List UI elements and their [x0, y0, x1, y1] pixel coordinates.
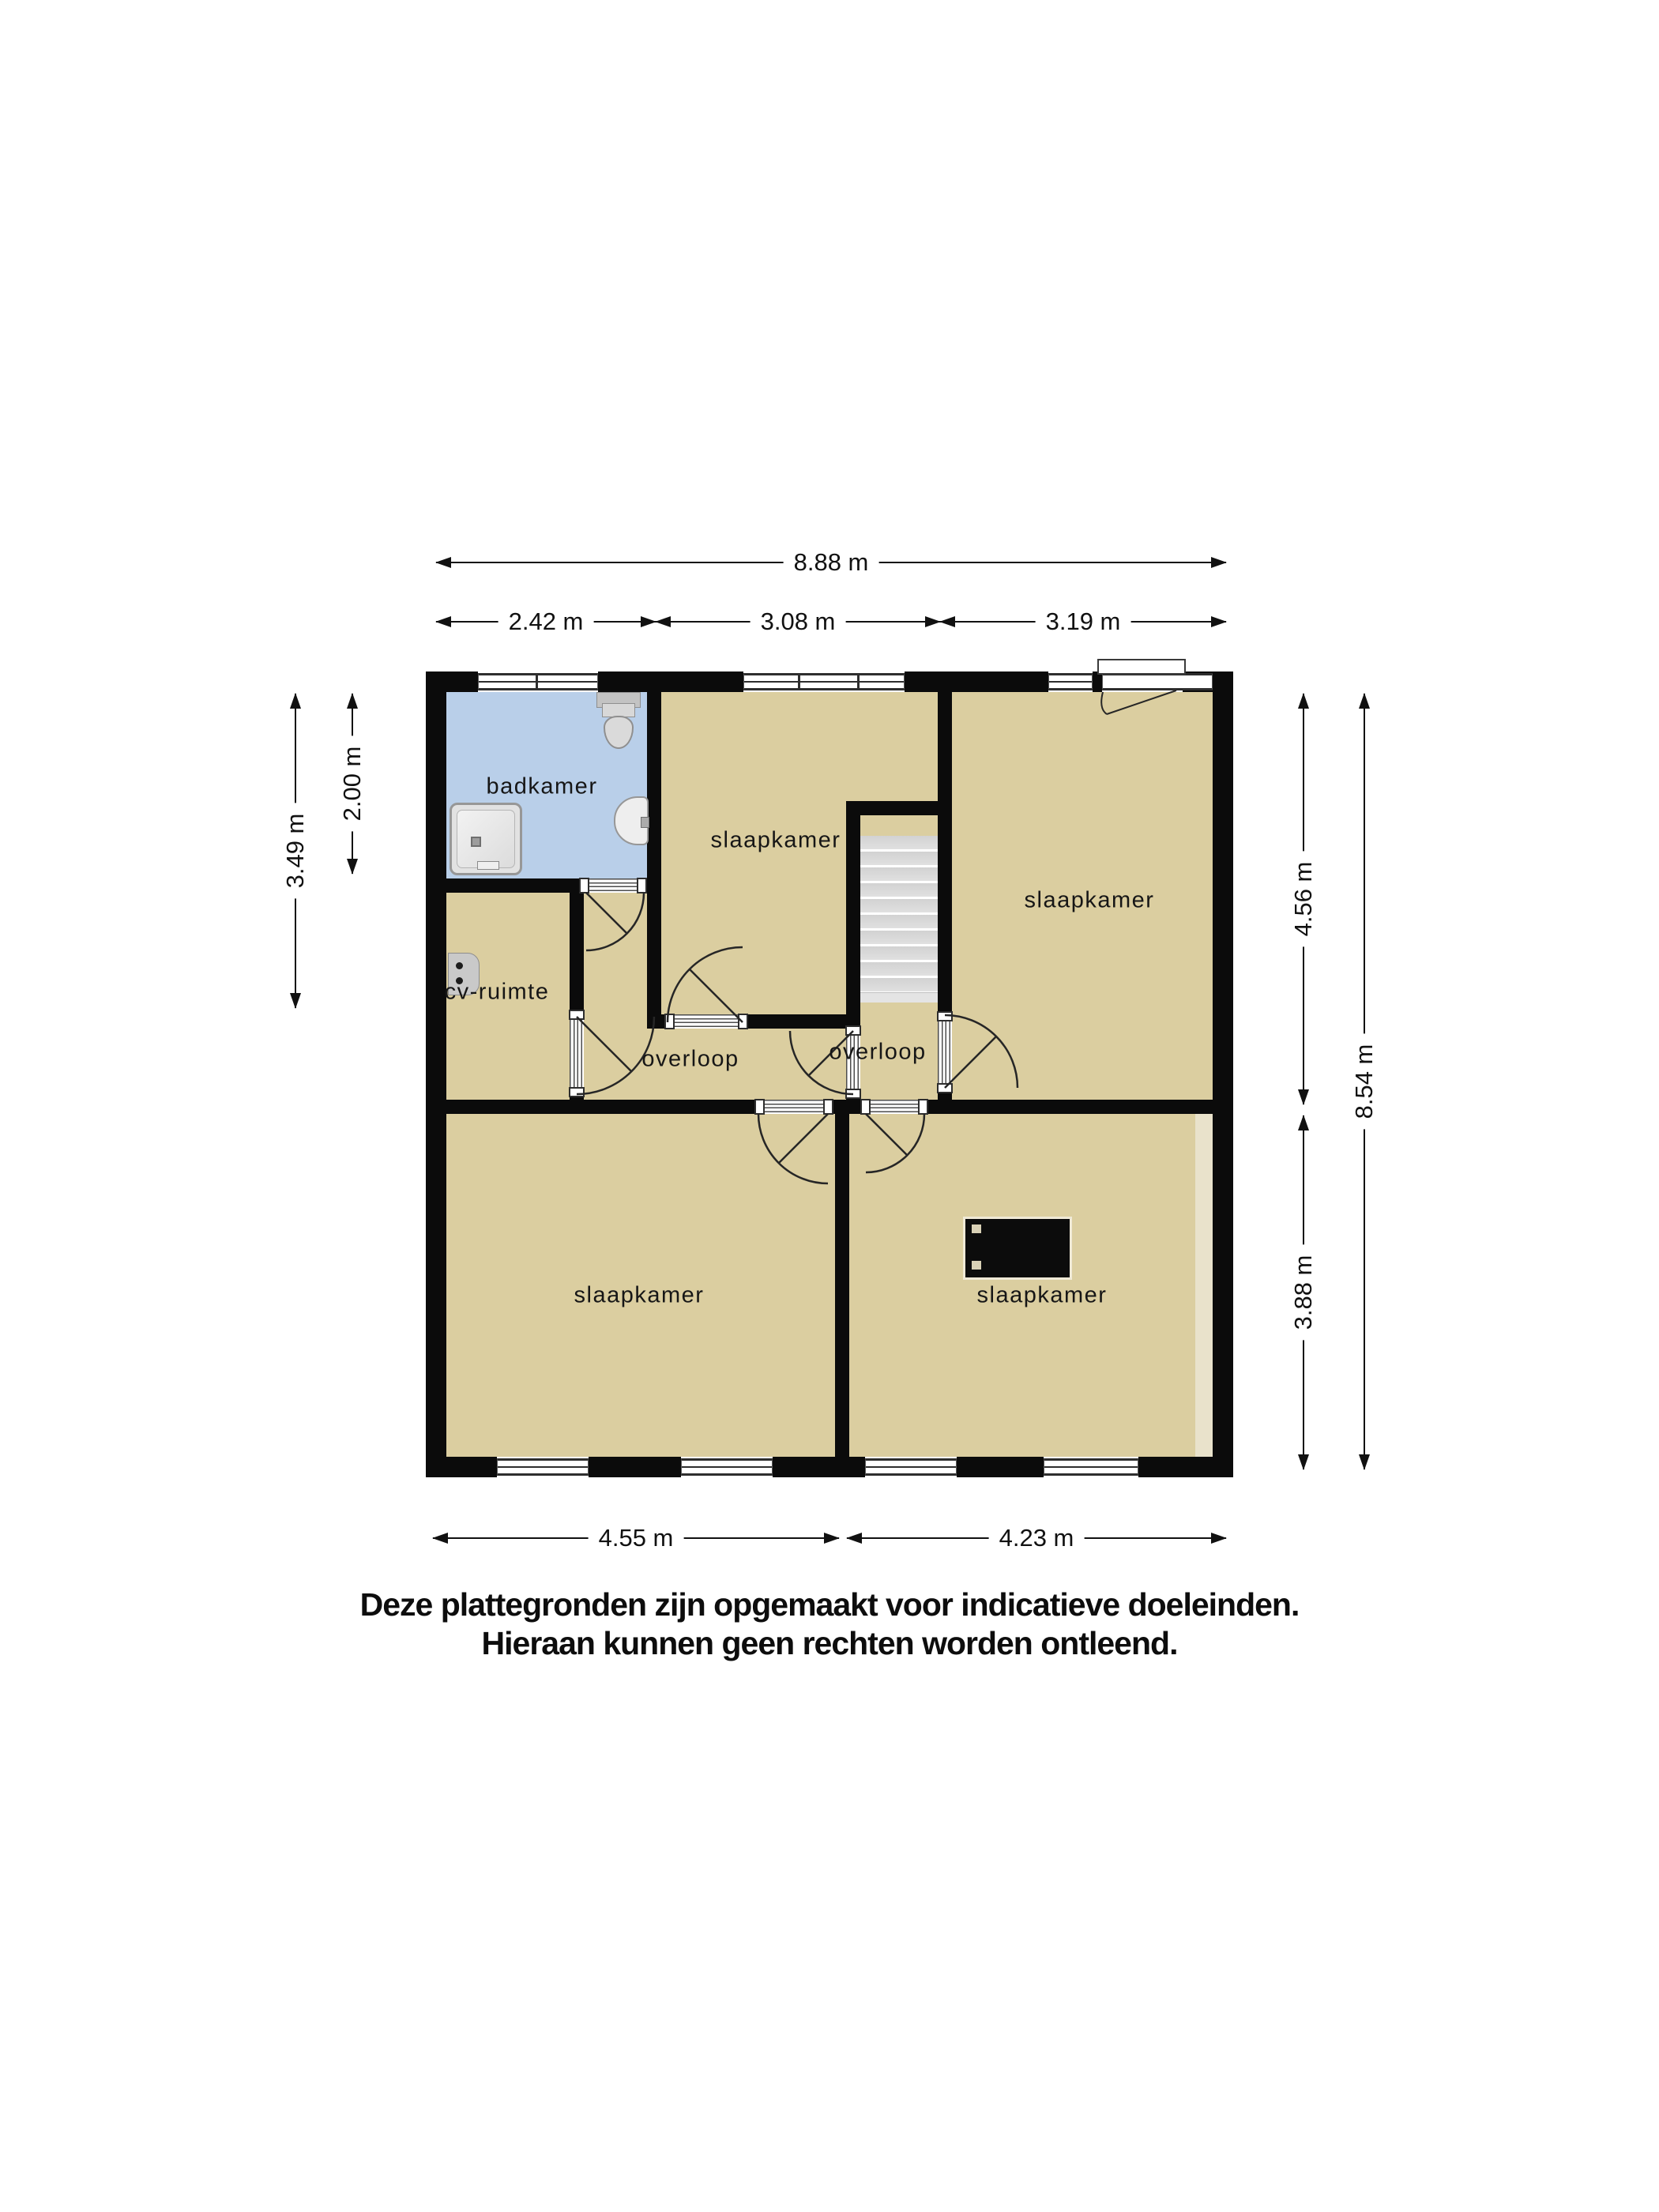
window-mullion	[536, 675, 538, 688]
wall-left	[426, 671, 446, 1477]
room-label-slaapkamer-top-middle: slaapkamer	[711, 828, 841, 854]
wall-top-3	[905, 671, 1048, 692]
disclaimer-line2: Hieraan kunnen geen rechten worden ontle…	[0, 1624, 1659, 1663]
chimney-flue	[972, 1261, 981, 1270]
wall-bottom-4	[957, 1457, 1044, 1477]
shower-tray	[457, 810, 515, 868]
room-label-cv-ruimte: cv-ruimte	[445, 980, 550, 1006]
door-bedroom-top-right	[938, 1014, 952, 1090]
room-label-slaapkamer-top-right: slaapkamer	[1025, 888, 1155, 914]
wall-bottom-3	[773, 1457, 865, 1477]
wall-hall-south-1	[426, 1100, 758, 1114]
chimney-flue	[972, 1224, 981, 1233]
dimension-label: 3.19 m	[1036, 608, 1131, 636]
dimension-label: 2.42 m	[498, 608, 594, 636]
shower-icon	[450, 803, 522, 875]
chimney-block	[965, 1219, 1070, 1277]
dimension-label: 8.54 m	[1350, 1034, 1379, 1130]
window-bottom-4	[1044, 1458, 1138, 1476]
wall-bottom-5	[1138, 1457, 1233, 1477]
wall-bedroom-mid-bottom-2	[745, 1014, 860, 1029]
wall-cv-right	[570, 893, 584, 1013]
shower-tap	[477, 861, 499, 870]
wall-hall-south-3	[925, 1100, 1233, 1114]
wall-stair-top	[846, 801, 952, 815]
dimension-label: 3.08 m	[750, 608, 846, 636]
room-label-overloop-east: overloop	[829, 1040, 926, 1066]
wall-bedroom-right-divider	[938, 692, 952, 1014]
dimension-label: 4.55 m	[589, 1524, 684, 1552]
window-bathroom	[478, 673, 598, 690]
door-bedroom-bottom-right	[863, 1100, 925, 1114]
door-cv-room	[570, 1013, 584, 1094]
wall-top-2	[598, 671, 743, 692]
wall-bathroom-bottom	[446, 878, 582, 893]
wall-accent-strip	[1195, 1114, 1213, 1457]
staircase-icon	[860, 836, 938, 992]
door-bedroom-bottom-left	[758, 1100, 830, 1114]
room-label-slaapkamer-bottom-right: slaapkamer	[977, 1283, 1108, 1309]
door-bedroom-top-middle	[668, 1014, 745, 1029]
wall-bathroom-right	[647, 692, 661, 1014]
room-label-slaapkamer-bottom-left: slaapkamer	[574, 1283, 705, 1309]
window-bottom-1	[497, 1458, 589, 1476]
open-casement-pane	[1097, 659, 1186, 675]
wall-right	[1213, 671, 1233, 1477]
wall-bottom-1	[426, 1457, 497, 1477]
staircase-landing	[860, 992, 938, 1003]
disclaimer: Deze plattegronden zijn opgemaakt voor i…	[0, 1586, 1659, 1663]
wall-bottom-2	[589, 1457, 681, 1477]
wall-hall-south-2	[830, 1100, 863, 1114]
toilet-icon	[596, 692, 641, 749]
washbasin-tap	[641, 817, 649, 828]
dimension-label: 2.00 m	[338, 736, 367, 832]
floorplan-page: { "floorplan": { "rooms": { "badkamer": …	[0, 0, 1659, 2212]
window-bedroom-top	[743, 673, 905, 690]
dimension-label: 3.49 m	[281, 803, 310, 899]
window-mullion	[798, 675, 800, 688]
window-bottom-2	[681, 1458, 773, 1476]
dimension-label: 4.23 m	[989, 1524, 1085, 1552]
disclaimer-line1: Deze plattegronden zijn opgemaakt voor i…	[0, 1586, 1659, 1624]
window-mullion	[857, 675, 860, 688]
shower-drain	[471, 837, 481, 847]
room-label-badkamer: badkamer	[487, 774, 598, 800]
window-bedroom-topright-fixed	[1048, 673, 1093, 690]
wall-bottom-bedrooms-divider	[835, 1114, 849, 1457]
window-bottom-3	[865, 1458, 957, 1476]
door-bathroom	[582, 878, 644, 893]
room-label-overloop-west: overloop	[641, 1047, 739, 1073]
window-bedroom-topright-open	[1102, 673, 1213, 690]
floor-plan: badkamer slaapkamer slaapkamer cv-ruimte…	[426, 671, 1233, 1477]
dimension-label: 3.88 m	[1289, 1245, 1318, 1341]
wall-stair-left	[846, 801, 860, 1014]
dimension-label: 4.56 m	[1289, 852, 1318, 947]
dimension-label: 8.88 m	[784, 548, 879, 577]
toilet-bowl	[604, 716, 634, 749]
